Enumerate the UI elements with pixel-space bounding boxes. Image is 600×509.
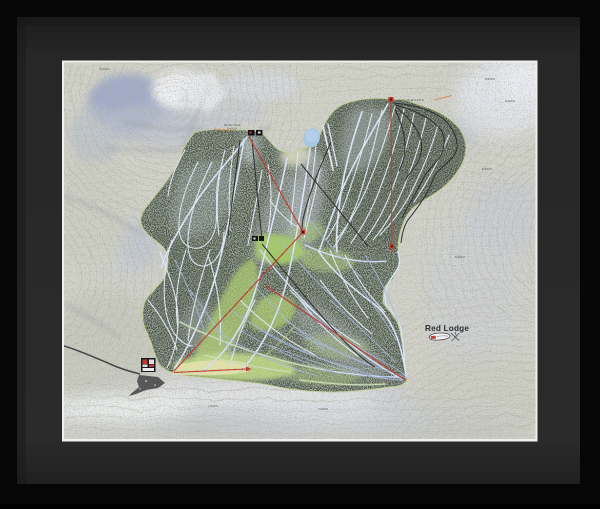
svg-text:7,033 ft: 7,033 ft <box>208 404 218 408</box>
svg-text:7,000 ft: 7,000 ft <box>318 407 328 411</box>
svg-text:Red Lodge: Red Lodge <box>425 324 469 333</box>
svg-text:8,000 ft: 8,000 ft <box>455 255 465 259</box>
svg-text:8,600 ft: 8,600 ft <box>482 167 492 171</box>
svg-text:8,800 ft: 8,800 ft <box>485 77 495 81</box>
svg-text:7,800 ft: 7,800 ft <box>142 221 152 225</box>
svg-text:Grizzly Peak 9,416 ft: Grizzly Peak 9,416 ft <box>398 98 424 102</box>
svg-text:9,416 ft: 9,416 ft <box>227 127 237 131</box>
svg-text:8,200 ft: 8,200 ft <box>100 67 110 71</box>
svg-text:9,000 ft: 9,000 ft <box>505 99 515 103</box>
